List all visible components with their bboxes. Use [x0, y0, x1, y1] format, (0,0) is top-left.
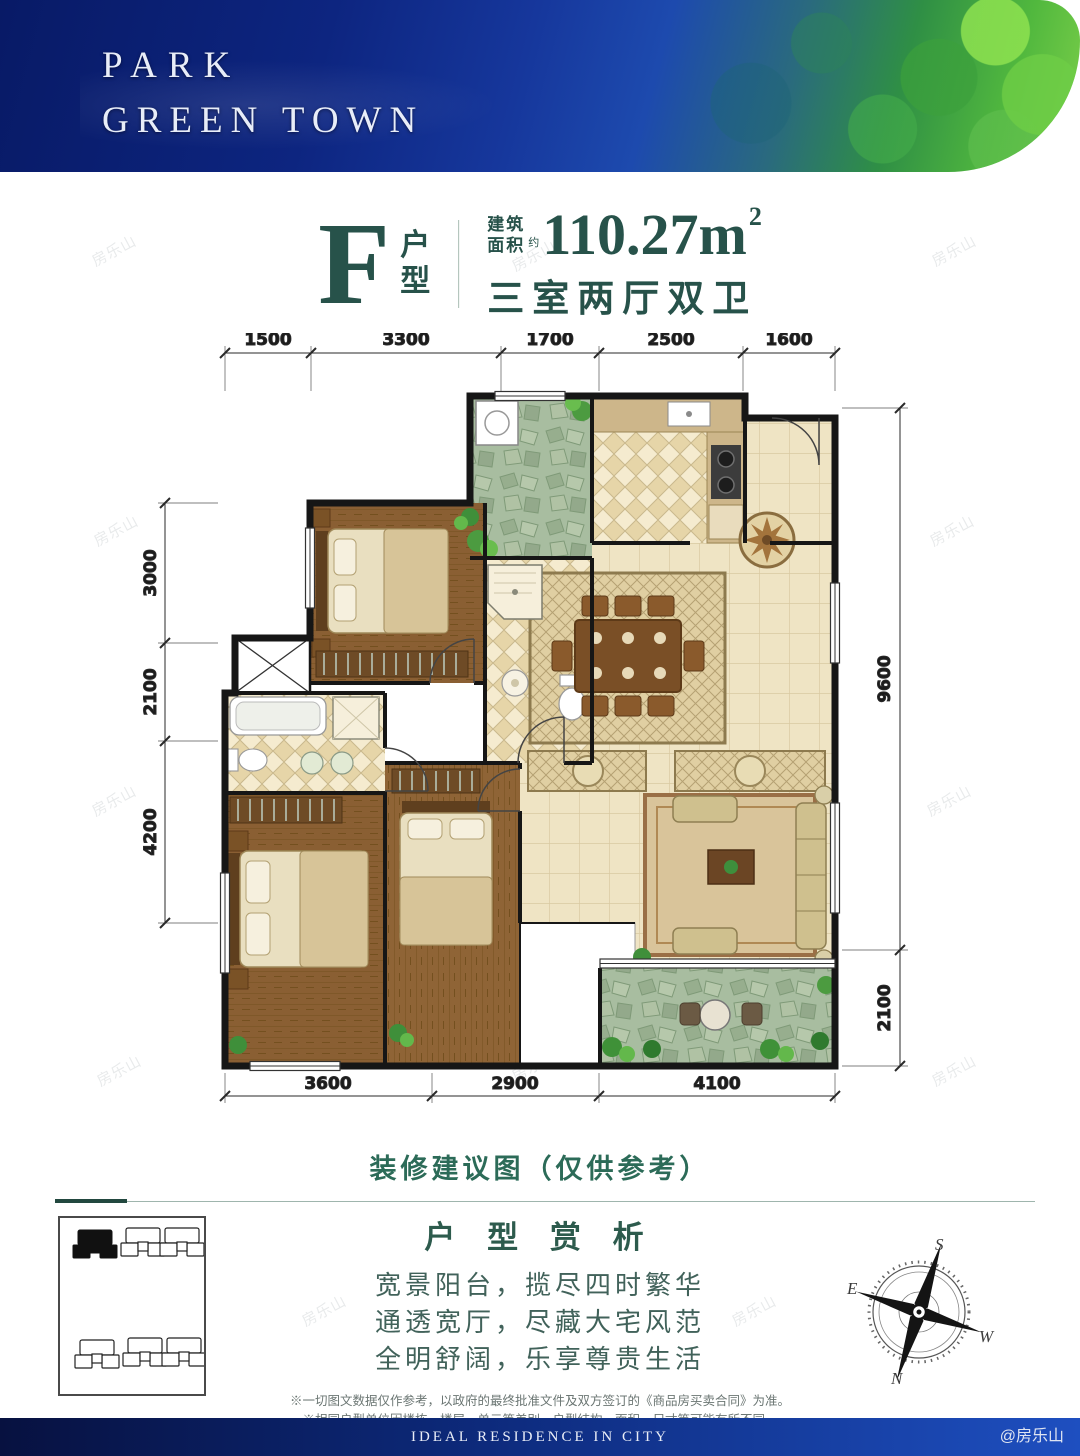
- site-key-map: [58, 1216, 206, 1396]
- compass-e: E: [846, 1279, 858, 1298]
- section-divider-accent: [55, 1199, 127, 1203]
- unit-type-char-top: 户: [400, 228, 430, 264]
- compass-w: W: [979, 1327, 995, 1346]
- sofa: [796, 803, 826, 949]
- pillow: [450, 819, 484, 839]
- analysis-line: 宽景阳台，揽尽四时繁华: [260, 1267, 820, 1304]
- fridge: [709, 505, 743, 539]
- header-banner: PARK GREEN TOWN: [0, 0, 1080, 172]
- loveseat: [673, 796, 737, 822]
- area-value: 110.27m: [542, 206, 747, 264]
- dining-chair: [552, 641, 572, 671]
- unit-type-char-bottom: 型: [400, 264, 430, 300]
- brand-line1: PARK: [102, 44, 424, 87]
- dim-top-2: 3300: [382, 333, 429, 350]
- plan-caption: 装修建议图（仅供参考）: [0, 1147, 1080, 1186]
- master-sink-1: [301, 752, 323, 774]
- section-divider: [55, 1201, 1035, 1202]
- watermark: 房乐山: [88, 230, 140, 271]
- nightstand: [228, 831, 248, 851]
- analysis-line: 全明舒阔，乐享尊贵生活: [260, 1341, 820, 1378]
- compass-rose: S E W N: [843, 1236, 995, 1388]
- unit-letter: F: [318, 216, 390, 313]
- master-sink-2: [331, 752, 353, 774]
- plant: [229, 1036, 247, 1054]
- washing-machine: [476, 401, 518, 445]
- floor-medallion: [740, 513, 794, 567]
- brand-logo: PARK GREEN TOWN: [102, 44, 424, 142]
- highlighted-building: [73, 1230, 117, 1258]
- layout-description: 三室两厅双卫: [487, 268, 762, 322]
- unit-type-label: 户 型: [400, 228, 430, 300]
- shaft: [235, 638, 310, 693]
- side-table: [815, 786, 833, 804]
- patio-chair: [742, 1003, 762, 1025]
- pillow: [334, 585, 356, 621]
- dim-left-3: 4200: [141, 808, 161, 855]
- patio-chair: [680, 1003, 700, 1025]
- master-toilet: [239, 749, 267, 771]
- forest-image: [610, 0, 1080, 172]
- table-plant: [724, 860, 738, 874]
- floorplan-drawing: 1500 3300 1700 2500 1600 3000 2100 4200 …: [130, 333, 950, 1125]
- analysis-section: 户 型 赏 析 宽景阳台，揽尽四时繁华 通透宽厅，尽藏大宅风范 全明舒阔，乐享尊…: [260, 1212, 820, 1430]
- dining-chair: [615, 596, 641, 616]
- area-prefix: 建筑 面积: [487, 214, 525, 256]
- patio-table: [700, 1000, 730, 1030]
- dim-top-3: 1700: [526, 333, 573, 350]
- bed-headboard: [402, 801, 490, 813]
- unit-title: F 户 型 建筑 面积 约 110.27m 2 三室两厅双卫: [318, 206, 762, 322]
- dim-right-2: 2100: [875, 984, 895, 1031]
- pillow: [246, 861, 270, 903]
- area-approx: 约: [528, 234, 539, 250]
- wardrobe: [316, 651, 468, 677]
- runner-rosette-1: [573, 756, 603, 786]
- dim-bottom-1: 3600: [304, 1074, 351, 1094]
- footer-handle: @房乐山: [1000, 1418, 1064, 1456]
- pillow: [246, 913, 270, 955]
- dim-right-1: 9600: [875, 655, 895, 702]
- watermark: 房乐山: [928, 230, 980, 271]
- footer-slogan: IDEAL RESIDENCE IN CITY: [0, 1418, 1080, 1456]
- dim-left-2: 2100: [141, 668, 161, 715]
- pillow: [408, 819, 442, 839]
- pillow: [334, 539, 356, 575]
- floorplan: 1500 3300 1700 2500 1600 3000 2100 4200 …: [130, 333, 950, 1125]
- disclaimer-line: ※一切图文数据仅作参考，以政府的最终批准文件及双方签订的《商品房买卖合同》为准。: [260, 1392, 820, 1411]
- area-superscript: 2: [749, 202, 762, 232]
- dining-chair: [582, 696, 608, 716]
- analysis-line: 通透宽厅，尽藏大宅风范: [260, 1304, 820, 1341]
- dim-top-4: 2500: [647, 333, 694, 350]
- footer-bar: IDEAL RESIDENCE IN CITY @房乐山: [0, 1418, 1080, 1456]
- dim-bottom-2: 2900: [491, 1074, 538, 1094]
- dim-left-1: 3000: [141, 549, 161, 596]
- loveseat: [673, 928, 737, 954]
- area-prefix-line2: 面积: [487, 235, 525, 256]
- brand-line2: GREEN TOWN: [102, 99, 424, 142]
- dining-chair: [684, 641, 704, 671]
- dining-chair: [648, 696, 674, 716]
- bed-headboard: [316, 531, 328, 631]
- dim-bottom-3: 4100: [693, 1074, 740, 1094]
- dim-top-1: 1500: [244, 333, 291, 350]
- title-divider: [458, 220, 459, 308]
- dining-chair: [615, 696, 641, 716]
- compass-n: N: [890, 1369, 904, 1388]
- runner-rosette-2: [735, 756, 765, 786]
- area-prefix-line1: 建筑: [487, 214, 525, 235]
- dining-chair: [648, 596, 674, 616]
- nightstand: [312, 509, 330, 527]
- analysis-title: 户 型 赏 析: [260, 1212, 820, 1257]
- compass-s: S: [935, 1236, 944, 1254]
- dim-top-5: 1600: [765, 333, 812, 350]
- nightstand: [228, 969, 248, 989]
- dining-chair: [582, 596, 608, 616]
